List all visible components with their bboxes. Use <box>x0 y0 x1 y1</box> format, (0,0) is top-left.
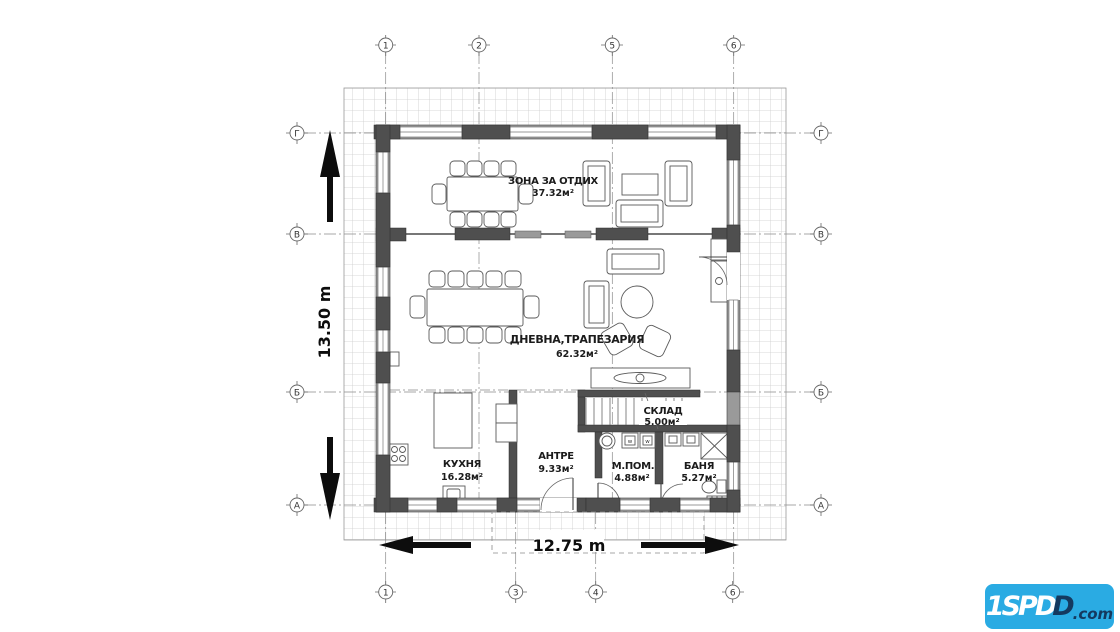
axis-label-top-1: 1 <box>383 42 389 52</box>
room-area-storage: 5.00м² <box>644 417 679 428</box>
axis-top-1: 1 <box>375 35 396 56</box>
axis-label-top-2: 2 <box>476 42 482 52</box>
room-area-utility: 4.88м² <box>614 473 649 484</box>
axis-label-right-g: Г <box>818 130 824 140</box>
arrow-down <box>320 437 340 520</box>
axis-label-bottom-6: 6 <box>730 589 736 599</box>
axis-label-right-b: Б <box>818 389 824 399</box>
axis-right-g: Г <box>810 122 832 144</box>
axis-top-2: 2 <box>468 35 490 56</box>
floor-plan-page: w w <box>0 0 1120 632</box>
washer-label-1: w <box>628 439 633 445</box>
room-name-hall: АНТРЕ <box>538 451 574 462</box>
axis-top-5: 5 <box>601 35 623 56</box>
washer-label-2: w <box>645 439 650 445</box>
axis-label-left-g: Г <box>294 130 300 140</box>
room-name-living: ДНЕВНА,ТРАПЕЗАРИЯ <box>510 333 645 346</box>
dimension-height: 13.50 m <box>315 286 334 359</box>
axis-label-right-v: В <box>818 231 824 241</box>
axis-label-bottom-3: 3 <box>513 589 519 599</box>
axis-left-a: А <box>286 494 308 516</box>
entrance-opening <box>540 498 578 512</box>
logo-text-dark: D <box>1052 593 1072 620</box>
room-area-hall: 9.33м² <box>538 464 573 475</box>
room-area-bath: 5.27м² <box>681 473 716 484</box>
room-name-utility: М.ПОМ. <box>612 461 655 472</box>
floor-plan-drawing: w w <box>0 0 1120 632</box>
axis-left-v: В <box>286 223 308 245</box>
axis-bottom-3: 3 <box>505 581 527 603</box>
axis-label-left-v: В <box>294 231 300 241</box>
room-area-living: 62.32м² <box>556 349 598 360</box>
dimension-width: 12.75 m <box>533 536 606 555</box>
axis-bottom-6: 6 <box>722 581 744 603</box>
logo-text-light: 1SPD <box>986 593 1054 620</box>
terrace-door-opening <box>727 252 740 300</box>
axis-left-g: Г <box>286 122 308 144</box>
axis-label-bottom-1: 1 <box>383 589 389 599</box>
axis-label-top-5: 5 <box>609 42 615 52</box>
room-area-kitchen: 16.28м² <box>441 472 483 483</box>
room-name-kitchen: КУХНЯ <box>443 459 481 470</box>
room-name-lounge: ЗОНА ЗА ОТДИХ <box>508 176 599 187</box>
axis-left-b: Б <box>286 381 308 403</box>
room-name-bath: БАНЯ <box>684 461 714 472</box>
axis-bottom-1: 1 <box>375 581 396 603</box>
axis-right-v: В <box>810 223 832 245</box>
axis-top-6: 6 <box>723 35 745 56</box>
room-name-storage: СКЛАД <box>644 406 683 417</box>
logo-badge: 1SPDD.com <box>985 584 1114 629</box>
axis-right-a: А <box>810 494 832 516</box>
axis-label-left-b: Б <box>294 389 300 399</box>
axis-bottom-4: 4 <box>585 581 607 603</box>
axis-label-right-a: А <box>818 502 825 512</box>
axis-label-top-6: 6 <box>731 42 737 52</box>
axis-right-b: Б <box>810 381 832 403</box>
top-windows <box>400 127 716 137</box>
arrow-up <box>320 130 340 222</box>
logo-suffix: .com <box>1073 607 1114 622</box>
room-area-lounge: 37.32м² <box>532 188 574 199</box>
axis-label-bottom-4: 4 <box>593 589 599 599</box>
axis-label-left-a: А <box>294 502 301 512</box>
